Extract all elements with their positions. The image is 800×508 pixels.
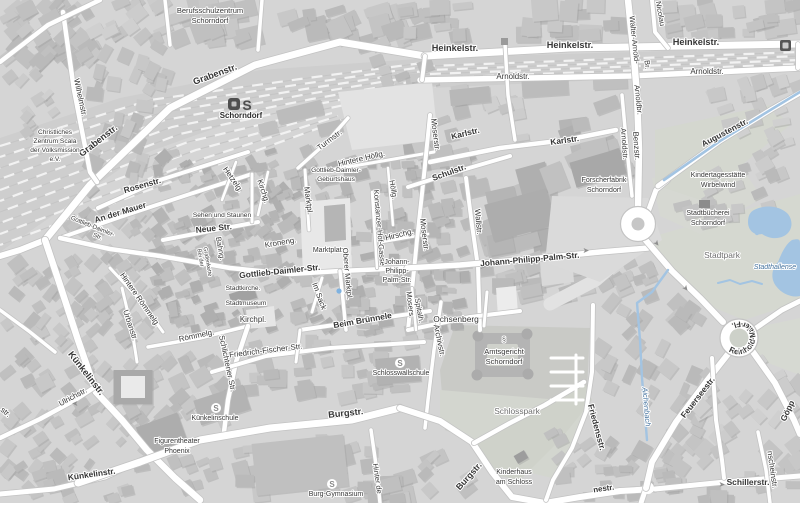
svg-text:Stadtbücherei: Stadtbücherei [686,210,730,217]
svg-text:Geburtshaus: Geburtshaus [317,176,355,183]
svg-text:Stadtmuseum: Stadtmuseum [226,300,267,307]
svg-text:Arnoldstr.: Arnoldstr. [496,72,529,81]
svg-text:Schorndorf: Schorndorf [192,16,230,25]
svg-text:➤: ➤ [583,246,590,255]
svg-text:Heinkelstr.: Heinkelstr. [547,40,593,50]
svg-text:Palm-Str.: Palm-Str. [383,277,412,284]
svg-text:Stadthallense: Stadthallense [754,264,797,271]
svg-text:Heinkelstr.: Heinkelstr. [673,37,719,47]
svg-text:Zentrum Scala: Zentrum Scala [34,138,77,145]
svg-text:Phoenix: Phoenix [164,448,190,455]
svg-text:S: S [397,359,403,368]
svg-text:Figurentheater: Figurentheater [154,438,200,445]
svg-text:S: S [213,404,219,413]
svg-text:Kinderhaus: Kinderhaus [496,469,532,476]
svg-text:Arnoldstr.: Arnoldstr. [690,67,723,76]
svg-text:Schorndorf: Schorndorf [220,111,263,120]
svg-text:Ochsenberg: Ochsenberg [433,314,479,324]
svg-text:Amtsgericht: Amtsgericht [484,347,525,356]
svg-text:Wirbelwind: Wirbelwind [701,182,735,189]
svg-text:Burg-Gymnasium: Burg-Gymnasium [309,491,364,498]
svg-text:Heinkelstr.: Heinkelstr. [432,43,478,53]
svg-text:§: § [502,337,506,344]
svg-text:Stadtkirche.: Stadtkirche. [226,285,261,292]
svg-text:der Volksmission: der Volksmission [30,147,80,154]
svg-text:Künkelinschule: Künkelinschule [191,415,238,422]
svg-text:Stadtpark: Stadtpark [704,250,741,260]
svg-text:e.V.: e.V. [49,156,60,163]
svg-text:Schillerstr.: Schillerstr. [727,477,770,487]
svg-text:Marktplatz: Marktplatz [313,247,346,254]
svg-text:am Schloss: am Schloss [496,479,533,486]
svg-text:Schorndorf: Schorndorf [486,357,524,366]
svg-text:S: S [329,480,335,489]
svg-text:➤: ➤ [719,480,726,489]
svg-text:Schlosswallschule: Schlosswallschule [373,370,430,377]
svg-text:Sehen und Staunen: Sehen und Staunen [193,212,252,219]
svg-text:Kindertagesstätte: Kindertagesstätte [691,172,746,179]
svg-text:Gottlieb-Daimler-: Gottlieb-Daimler- [311,167,361,174]
svg-text:Schorndorf: Schorndorf [587,187,621,194]
svg-text:Schlosspark: Schlosspark [494,406,540,416]
svg-text:Johann-: Johann- [384,259,410,266]
svg-text:Schorndorf: Schorndorf [691,220,725,227]
svg-text:Br.: Br. [643,60,653,70]
svg-text:Forscherfabrik: Forscherfabrik [582,177,627,184]
svg-text:Berufsschulzentrum: Berufsschulzentrum [177,6,243,15]
svg-text:Christliches: Christliches [38,129,73,136]
svg-text:Kirchpl.: Kirchpl. [240,315,266,324]
svg-text:Philipp-: Philipp- [385,268,409,275]
